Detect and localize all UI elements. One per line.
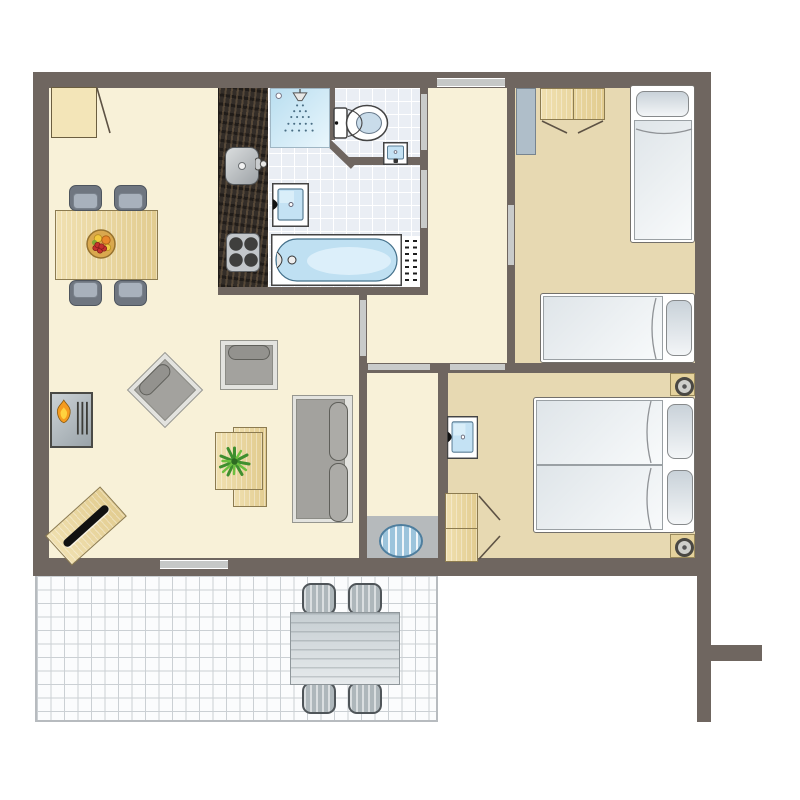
bedroom1-bed1-pillow [636, 91, 689, 117]
door-toilet [421, 94, 427, 150]
dining-chair-2 [114, 185, 147, 211]
terrace-table [290, 612, 400, 685]
wall-right [695, 72, 711, 576]
fruit-bowl-icon [86, 229, 116, 259]
dining-chair-1 [69, 185, 102, 211]
wall-bottom [33, 558, 711, 576]
wall-garden-stub [711, 645, 762, 661]
plant-icon [218, 445, 251, 478]
wall-left [33, 72, 49, 576]
sofa-cushion-1 [329, 402, 348, 461]
doormat [379, 524, 423, 558]
bedroom1-wardrobe [540, 88, 605, 120]
wall-top [33, 72, 711, 88]
bedroom2-ceiling-spot-1 [670, 373, 695, 396]
bedroom2-mattress-a [536, 400, 663, 465]
kitchen-faucet-icon [255, 154, 267, 174]
shower [270, 88, 330, 148]
sofa-cushion-2 [329, 463, 348, 522]
terrace-chair-2 [348, 583, 382, 615]
bedroom1-bed2-mattress [543, 296, 663, 360]
fireplace [50, 392, 93, 448]
floor-plan [0, 0, 800, 800]
bedroom2-wardrobe [445, 493, 478, 562]
bathroom-radiator [404, 240, 419, 285]
bathtub-icon [271, 234, 402, 286]
bedroom1-bed1-mattress [634, 120, 692, 240]
bedroom2-mattress-b [536, 465, 663, 530]
armchair-2 [220, 340, 278, 390]
kitchen-sink [225, 147, 259, 185]
bedroom1-bed2-pillow [666, 300, 692, 356]
bedroom2-pillow-b [667, 470, 693, 525]
dining-chair-4 [114, 280, 147, 306]
terrace-chair-4 [348, 682, 382, 714]
door-bedroom2 [450, 364, 505, 370]
bedroom2-ceiling-spot-2 [670, 534, 695, 558]
dining-chair-3 [69, 280, 102, 306]
wall-kitchenbath-south [218, 287, 428, 295]
door-bathroom [421, 170, 427, 228]
window-south [160, 560, 228, 569]
window-north [437, 78, 505, 87]
bedroom2-pillow-a [667, 404, 693, 459]
wall-right-extension [697, 576, 711, 722]
terrace-chair-1 [302, 583, 336, 615]
bedroom1-radiator [516, 88, 536, 155]
door-bedroom1 [508, 205, 514, 265]
kitchen-hob [226, 233, 260, 272]
hand-basin-icon [383, 142, 408, 165]
terrace-chair-3 [302, 682, 336, 714]
washbasin-icon [272, 183, 309, 227]
entry-door-leaf [51, 87, 97, 138]
door-corridor [368, 364, 430, 370]
wall-corridor-west [359, 373, 367, 558]
toilet-icon [330, 100, 392, 146]
door-living-hall [360, 300, 366, 356]
bedroom2-washbasin-icon [447, 416, 478, 459]
